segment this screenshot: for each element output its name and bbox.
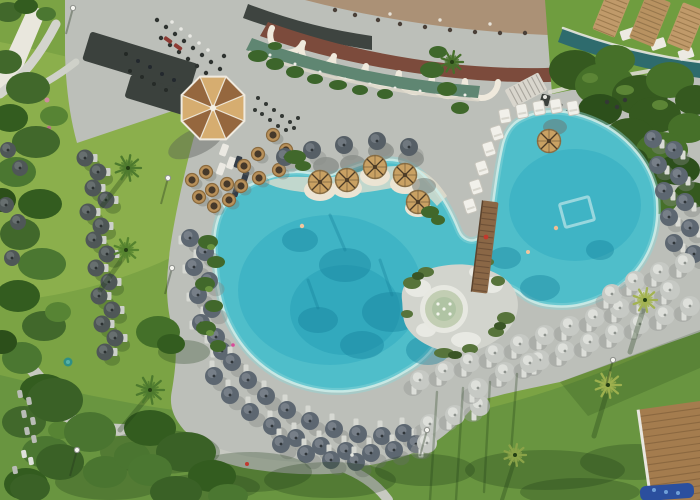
aerial-scene-canvas: [0, 0, 700, 500]
thatch-umbrella: [336, 169, 359, 192]
umbrella: [10, 214, 26, 230]
umbrella: [0, 142, 16, 158]
resort-aerial-photo: [0, 0, 700, 500]
thatch-umbrella: [309, 171, 332, 194]
thatch-umbrella: [364, 156, 387, 179]
cabana-bed: [566, 100, 579, 116]
fountain: [64, 358, 73, 367]
pool-bar-parasol: [182, 77, 245, 140]
thatch-umbrella: [394, 164, 417, 187]
cabana-bed: [549, 98, 562, 114]
bridge-person: [484, 235, 489, 240]
umbrella: [12, 160, 28, 176]
spa-pool: [420, 285, 468, 333]
umbrella: [4, 250, 20, 266]
cabana-bed: [498, 108, 511, 124]
cabana-bed: [532, 100, 545, 116]
thatch-umbrella: [538, 130, 561, 153]
cabana-bed: [515, 103, 528, 119]
